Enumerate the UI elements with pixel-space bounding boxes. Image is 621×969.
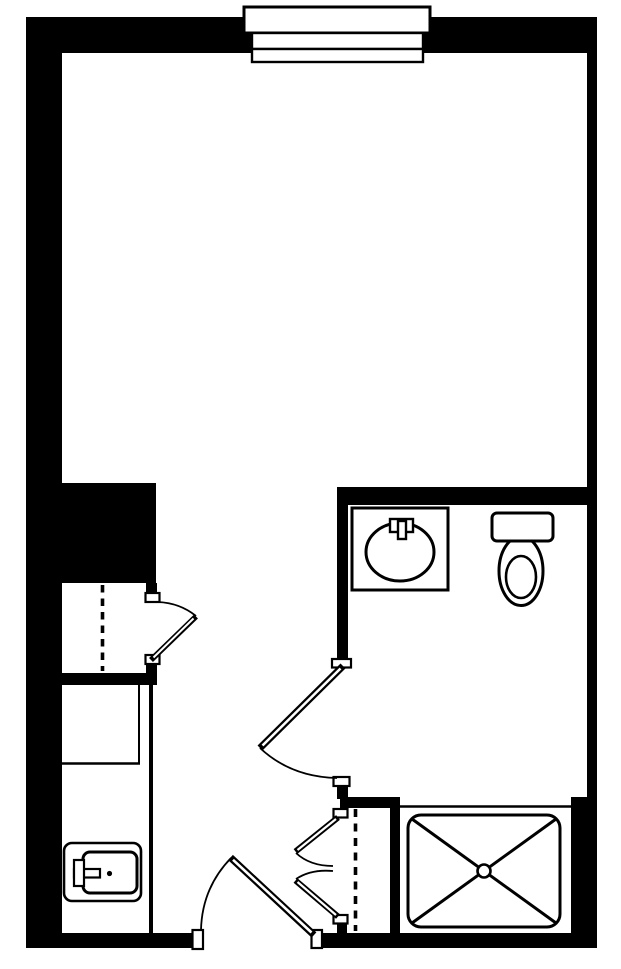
entry-door-leaf-core (233, 860, 312, 933)
window-pane-lower (252, 49, 423, 62)
closet-door-leaf-core (154, 619, 194, 658)
entry-door-jamb-left (193, 930, 204, 949)
wall-right-lower (571, 797, 597, 948)
wall-bathroom-left (337, 505, 348, 659)
shower-drain (478, 865, 491, 878)
wall-linen-closet-right (390, 805, 400, 935)
linen-door-leaf-bottom-core (298, 882, 337, 915)
toilet-seat (506, 556, 536, 598)
wall-bottom-right (322, 933, 597, 948)
floor-plan-svg (0, 0, 621, 969)
wall-right-upper (587, 17, 597, 798)
kitchen-sink-drain (107, 871, 112, 876)
entry-door-swing-arc (201, 858, 231, 930)
wall-left (26, 17, 62, 948)
bathroom-door-leaf-core (263, 669, 341, 746)
window-frame (244, 7, 430, 33)
linen-door-leaf-top-core (298, 819, 337, 850)
wall-closet-counter-divider (62, 673, 157, 685)
bathroom-door-swing-arc (260, 748, 337, 778)
floor-plan (0, 0, 621, 969)
wall-block-closet (26, 483, 156, 583)
linen-door-swing-arc-bottom (296, 871, 333, 879)
wall-bottom-left (26, 933, 193, 948)
wall-bathroom-top (337, 487, 597, 505)
vanity-faucet-stem (398, 521, 406, 539)
kitchen-sink-handle (74, 860, 84, 886)
closet-door-jamb-top (146, 593, 160, 602)
linen-door-swing-arc-top (296, 853, 333, 866)
closet-door-swing-arc (158, 602, 196, 616)
window-pane-upper (252, 33, 423, 49)
toilet-tank (492, 513, 553, 541)
